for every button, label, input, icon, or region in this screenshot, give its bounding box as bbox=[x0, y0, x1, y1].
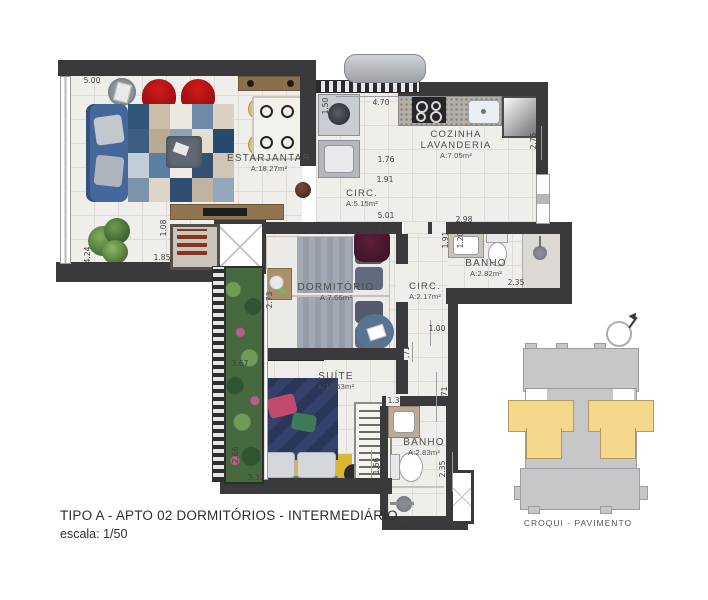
dim-label: 2.66 bbox=[231, 442, 241, 468]
dim-label: 2.15 bbox=[304, 75, 314, 101]
room-name: LAVANDERIA bbox=[406, 140, 506, 151]
barbecue-grill bbox=[170, 224, 220, 270]
dim-label: 1.71 bbox=[440, 382, 450, 408]
plant-foliage bbox=[102, 240, 128, 264]
plate bbox=[260, 105, 273, 118]
room-label-kitchen: COZINHA LAVANDERIA A:7.05m² bbox=[406, 129, 506, 160]
burner bbox=[416, 112, 426, 122]
dim-label: 2.35 bbox=[438, 456, 448, 482]
sofa-cushion bbox=[94, 155, 125, 188]
bowl bbox=[247, 80, 254, 87]
dim-label: 5.00 bbox=[79, 76, 105, 86]
dim-label: 1.35 bbox=[383, 396, 409, 406]
dim-label: 2.75 bbox=[529, 128, 539, 154]
dim-line bbox=[452, 452, 453, 492]
bowl bbox=[287, 80, 294, 87]
ac-condenser bbox=[344, 54, 426, 83]
dim-label: 1.76 bbox=[373, 155, 399, 165]
plan-title: TIPO A - APTO 02 DORMITÓRIOS - INTERMEDI… bbox=[60, 508, 398, 523]
drain bbox=[481, 109, 486, 114]
plate bbox=[281, 136, 294, 149]
croqui-label: CROQUI - PAVIMENTO bbox=[498, 518, 658, 528]
dim-line bbox=[336, 96, 418, 97]
burner bbox=[431, 101, 441, 111]
vase bbox=[295, 182, 311, 198]
croqui-gray-bottom bbox=[520, 468, 640, 510]
shower-partition bbox=[388, 486, 444, 488]
room-name: BANHO bbox=[384, 437, 464, 448]
dim-label: 5.01 bbox=[373, 211, 399, 221]
room-label-bath1: BANHO A:2.82m² bbox=[446, 258, 526, 278]
room-area: A:18.27m² bbox=[209, 164, 329, 173]
cooktop bbox=[412, 97, 446, 123]
croqui-unit-left-lower bbox=[526, 428, 562, 459]
open-book bbox=[366, 324, 386, 342]
window-living bbox=[60, 76, 71, 264]
wall bbox=[396, 360, 408, 394]
sofa bbox=[86, 104, 128, 202]
room-area: A:7.05m² bbox=[406, 151, 506, 160]
dim-label: 1.08 bbox=[159, 215, 169, 241]
plate bbox=[281, 105, 294, 118]
bath2-sink bbox=[393, 411, 415, 433]
shower-head bbox=[533, 246, 547, 260]
dim-label: .71 bbox=[402, 339, 412, 365]
dim-label: 4.70 bbox=[368, 98, 394, 108]
room-name: COZINHA bbox=[406, 129, 506, 140]
room-area: A:2.83m² bbox=[384, 448, 464, 457]
dim-label: 1.66 bbox=[372, 453, 382, 479]
washer-door bbox=[328, 103, 350, 125]
dim-line bbox=[541, 126, 542, 160]
bath2-vanity bbox=[388, 406, 420, 438]
dim-label: 4.24 bbox=[83, 242, 93, 268]
dim-label: 2.81 bbox=[373, 226, 399, 236]
room-area: A:10.63m² bbox=[276, 382, 396, 391]
dim-label: 1.20 bbox=[456, 227, 466, 253]
room-label-suite: SUÍTE A:10.63m² bbox=[276, 371, 396, 391]
dining-table bbox=[252, 96, 302, 160]
kitchen-sink bbox=[468, 100, 500, 124]
room-area: A:5.15m² bbox=[322, 199, 402, 208]
tv bbox=[203, 208, 247, 216]
dim-label: 2.98 bbox=[451, 215, 477, 225]
plan-scale: escala: 1/50 bbox=[60, 527, 127, 541]
room-label-circ2: CIRC. A:2.17m² bbox=[385, 281, 465, 301]
dim-line bbox=[412, 342, 413, 362]
dim-label: 1.91 bbox=[372, 175, 398, 185]
dim-label: 1.00 bbox=[424, 324, 450, 334]
wall bbox=[398, 82, 548, 96]
croqui-gray-top bbox=[523, 348, 639, 392]
blanket bbox=[297, 297, 353, 351]
skewers bbox=[177, 229, 207, 259]
side-table bbox=[108, 78, 136, 106]
croqui-unit-right-lower bbox=[600, 428, 636, 459]
table-decor bbox=[173, 142, 190, 156]
window-kitchen bbox=[536, 174, 550, 224]
plant bbox=[86, 218, 134, 266]
round-rug bbox=[356, 314, 394, 350]
shower-arm bbox=[539, 236, 541, 248]
dim-label: 3.32 bbox=[243, 473, 269, 483]
north-arrow-icon bbox=[606, 321, 632, 347]
console-table bbox=[238, 76, 304, 91]
sofa-cushion bbox=[93, 114, 125, 146]
bath1-vanity bbox=[448, 232, 484, 258]
room-area: A:7.66m² bbox=[276, 293, 396, 302]
vertical-garden bbox=[224, 266, 264, 484]
burner bbox=[430, 111, 442, 123]
room-label-bath2: BANHO A:2.83m² bbox=[384, 437, 464, 457]
room-area: A:2.82m² bbox=[446, 269, 526, 278]
room-name: SUÍTE bbox=[276, 371, 396, 382]
room-name: DORMITÓRIO bbox=[276, 282, 396, 293]
room-name: ESTARJANTAR bbox=[209, 153, 329, 164]
magazine bbox=[113, 81, 132, 103]
wall bbox=[396, 234, 408, 264]
room-name: CIRC. bbox=[385, 281, 465, 292]
plate bbox=[260, 136, 273, 149]
tv-sideboard bbox=[170, 204, 284, 220]
croqui-gray-tab bbox=[528, 506, 540, 514]
croqui-gray-tab bbox=[600, 506, 612, 514]
pillow bbox=[297, 452, 336, 478]
dim-label: 1.91 bbox=[441, 227, 451, 253]
north-arrowhead bbox=[629, 310, 640, 320]
dim-label: 2.73 bbox=[265, 287, 275, 313]
room-name: BANHO bbox=[446, 258, 526, 269]
dim-line bbox=[436, 372, 437, 422]
room-label-dorm: DORMITÓRIO A:7.66m² bbox=[276, 282, 396, 302]
dim-label: 1.85 bbox=[149, 253, 175, 263]
shaft-box bbox=[450, 470, 474, 524]
room-name: CIRC. bbox=[322, 188, 402, 199]
coffee-table bbox=[166, 136, 202, 168]
room-area: A:2.17m² bbox=[385, 292, 465, 301]
room-label-living: ESTARJANTAR A:18.27m² bbox=[209, 153, 329, 173]
shower-arm bbox=[390, 502, 414, 505]
dim-label: 3.67 bbox=[227, 359, 253, 369]
room-label-circ1: CIRC. A:5.15m² bbox=[322, 188, 402, 208]
dim-label: 2.35 bbox=[503, 278, 529, 288]
dim-label: 1.50 bbox=[321, 93, 331, 119]
floor-plan-canvas: 5.00 2.15 1.50 4.70 2.75 1.76 1.91 5.01 … bbox=[0, 0, 708, 600]
wall bbox=[58, 60, 312, 76]
